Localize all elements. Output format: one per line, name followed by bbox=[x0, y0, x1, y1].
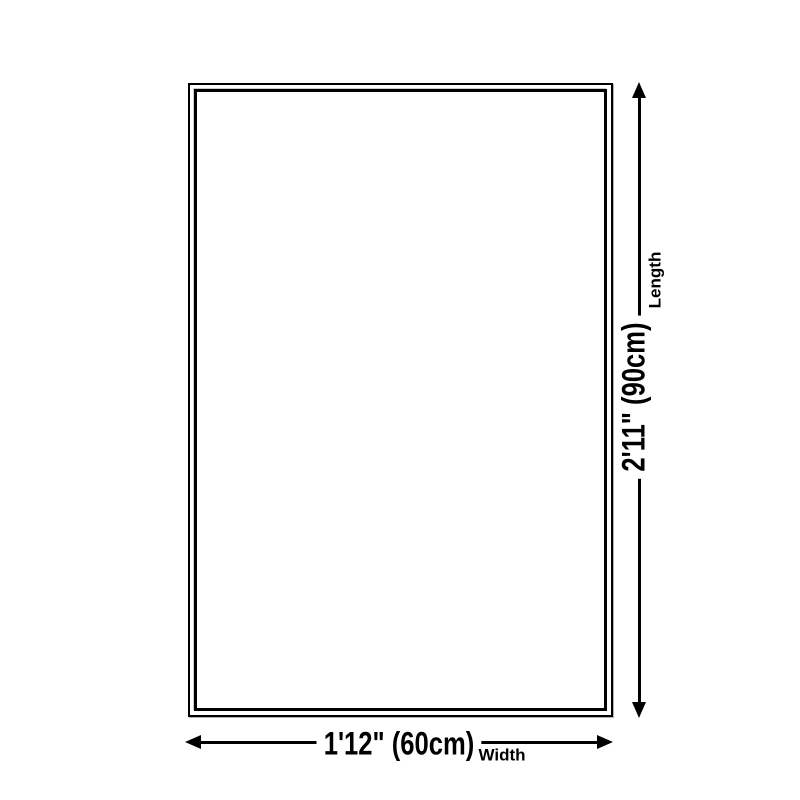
rug-inner-outline bbox=[194, 89, 607, 711]
arrow-up-icon bbox=[632, 82, 646, 98]
arrow-right-icon bbox=[597, 735, 613, 749]
rug-outline bbox=[188, 83, 613, 717]
length-value: 2'11" (90cm) bbox=[616, 315, 653, 479]
arrow-down-icon bbox=[632, 702, 646, 718]
width-label: Width bbox=[478, 747, 525, 766]
arrow-left-icon bbox=[185, 735, 201, 749]
width-value: 1'12" (60cm) bbox=[317, 726, 482, 763]
length-label: Length bbox=[647, 252, 666, 309]
rug-dimension-diagram: 2'11" (90cm) Length 1'12" (60cm) Width bbox=[0, 0, 800, 800]
